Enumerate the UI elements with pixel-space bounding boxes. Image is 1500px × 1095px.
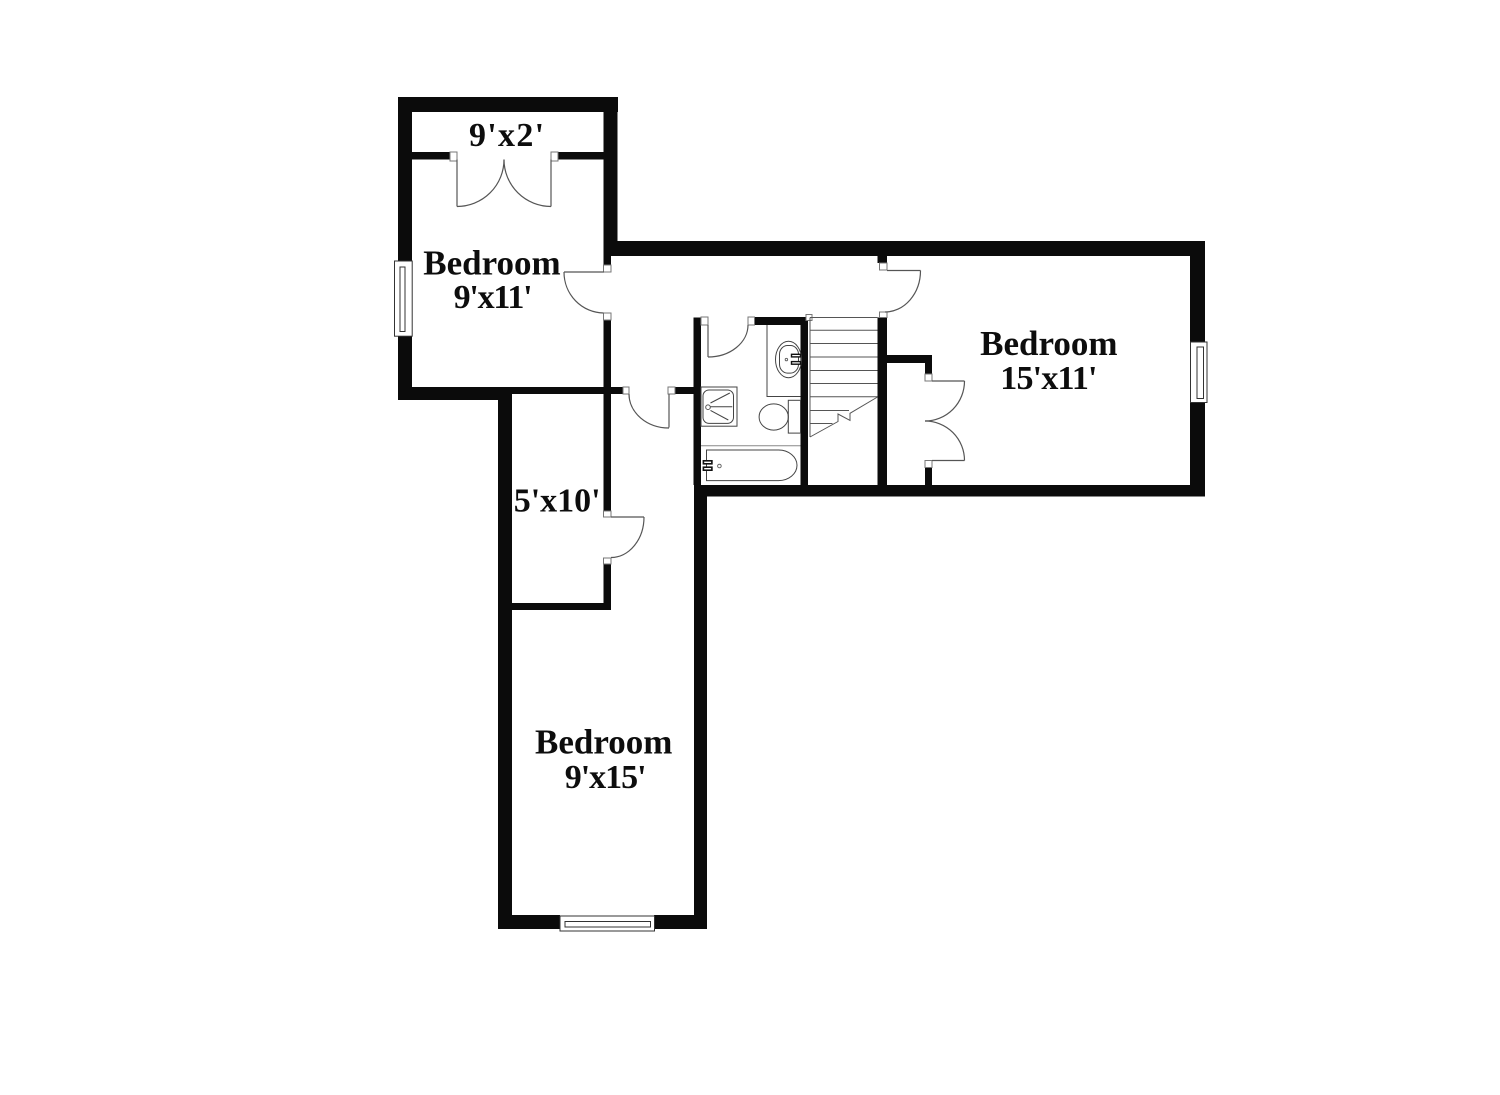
svg-text:Bedroom: Bedroom [535,723,672,762]
svg-text:15'x11': 15'x11' [1000,360,1096,397]
svg-text:9'x2': 9'x2' [469,117,545,154]
svg-text:9'x11': 9'x11' [454,279,532,316]
svg-text:5'x10': 5'x10' [514,483,601,520]
svg-text:Bedroom: Bedroom [423,244,560,283]
svg-text:9'x15': 9'x15' [565,759,646,796]
svg-text:Bedroom: Bedroom [980,324,1117,363]
